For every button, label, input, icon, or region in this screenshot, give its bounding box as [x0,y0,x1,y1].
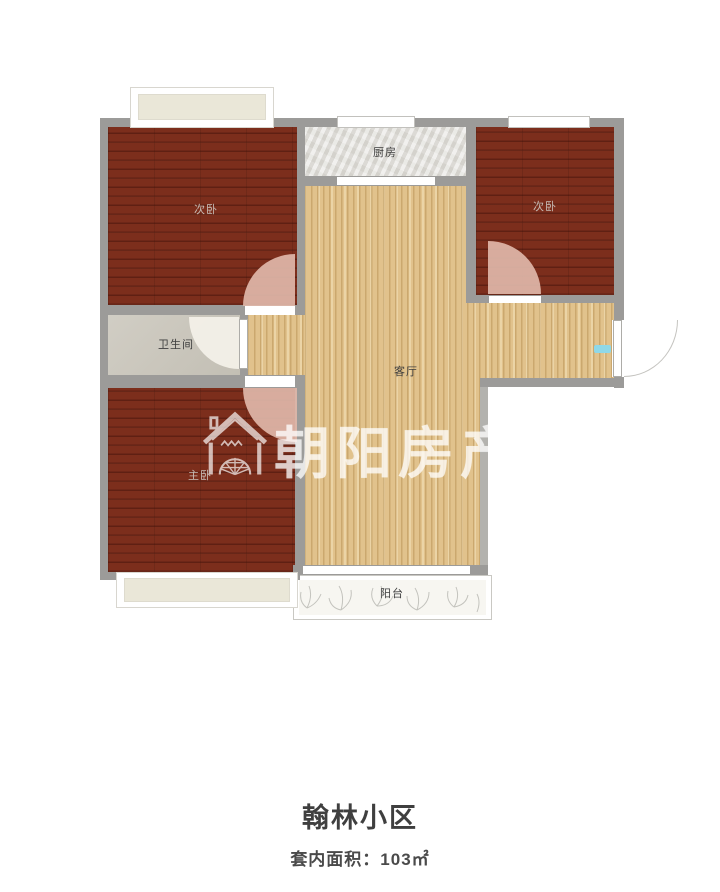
watermark-text: 朝阳房产 [274,409,522,490]
entry-marker [594,345,611,353]
bedroom-right-window [508,116,590,128]
kitchen-window [337,116,415,128]
living-room-floor-upper [305,186,466,304]
hallway-floor [248,315,305,378]
entry-door-arc [624,320,678,377]
entry-door-leaf [613,320,622,377]
bathroom-door-leaf [239,319,248,369]
bay-window-bottom [116,572,298,608]
bathroom-label: 卫生间 [158,336,194,352]
wall-left [100,118,108,580]
bay-window-top [130,87,274,128]
wall-bedroomleft-right [297,118,305,315]
house-sun-icon [200,408,270,480]
bedroom-right-door-opening [489,296,541,303]
balcony-label: 阳台 [380,585,404,601]
area-label: 套内面积：103㎡ [0,845,720,870]
kitchen-pass-opening [337,177,435,185]
master-door-opening [245,376,295,387]
wall-kitchen-right [466,118,476,303]
bedroom-right-label: 次卧 [533,198,557,214]
bedroom-left-door-opening [245,306,295,315]
community-title: 翰林小区 [0,796,720,835]
kitchen-label: 厨房 [373,144,397,160]
wall-entry-bottom [480,378,624,387]
bedroom-left-label: 次卧 [194,201,218,217]
living-room-label: 客厅 [394,363,418,379]
floorplan-image: 次卧 厨房 次卧 卫生间 客厅 主卧 阳台 朝阳房产 翰林小区 套内面积：103… [0,0,720,892]
balcony-door-opening [303,566,470,574]
living-room-floor-entry-band [305,303,614,378]
